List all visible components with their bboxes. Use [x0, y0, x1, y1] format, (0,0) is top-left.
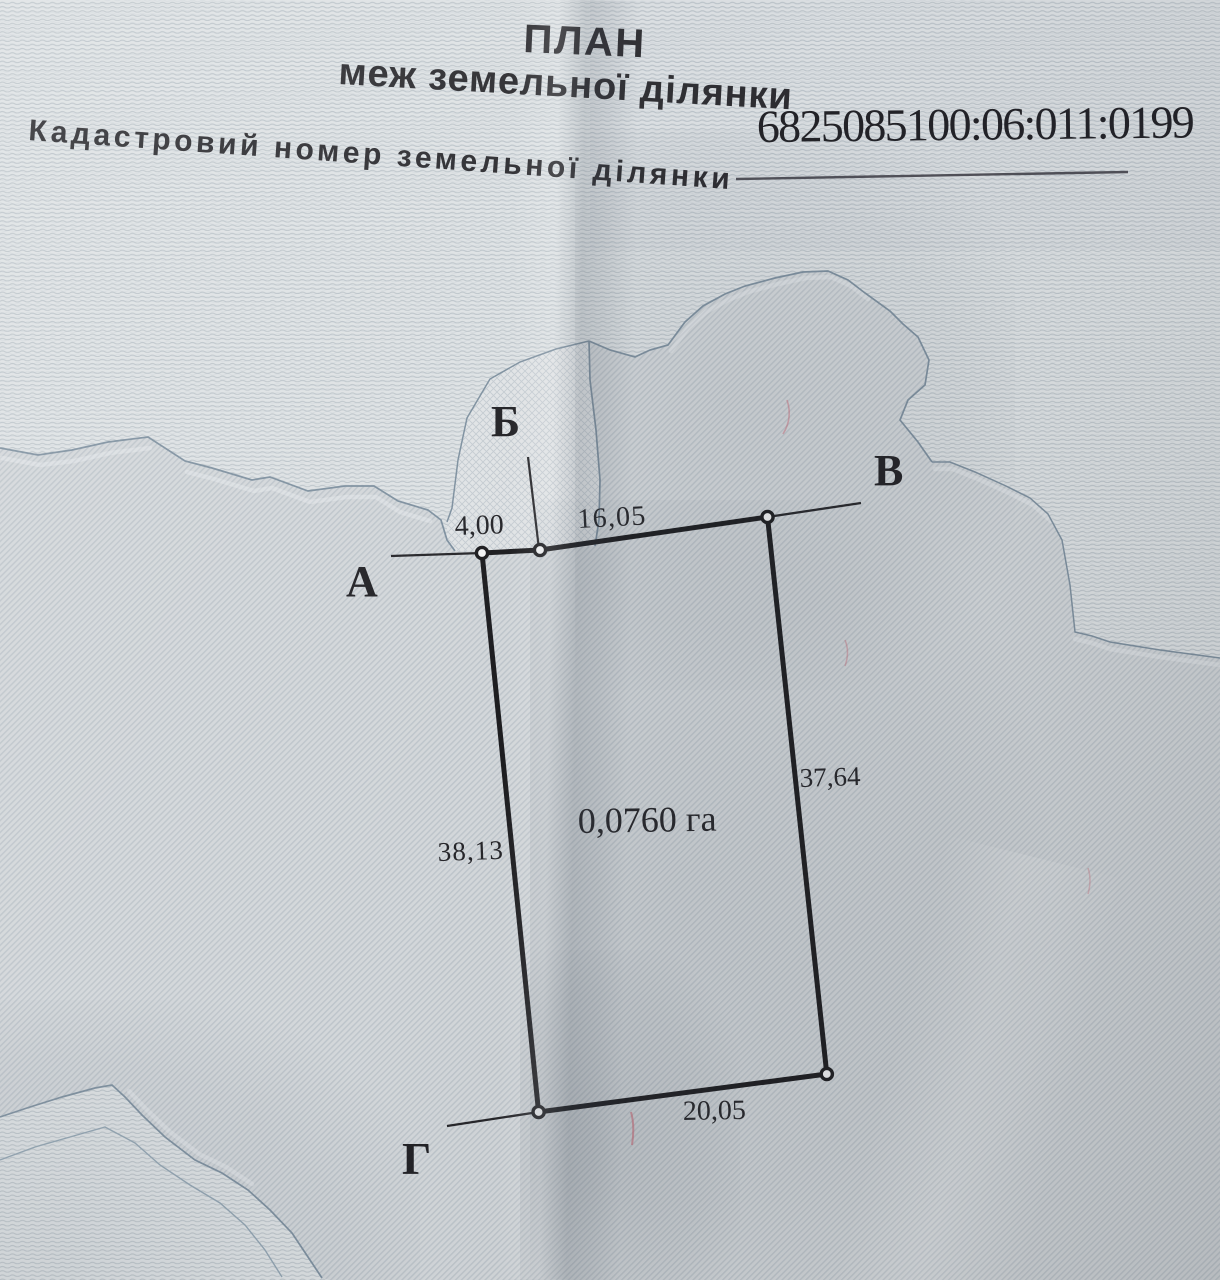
svg-text:20,05: 20,05 — [683, 1095, 747, 1127]
svg-text:Г: Г — [402, 1133, 431, 1184]
svg-text:Б: Б — [491, 397, 520, 446]
svg-text:В: В — [874, 446, 903, 495]
svg-text:6825085100:06:011:0199: 6825085100:06:011:0199 — [757, 96, 1194, 152]
svg-text:16,05: 16,05 — [577, 500, 648, 535]
svg-text:А: А — [346, 557, 378, 606]
svg-text:4,00: 4,00 — [454, 509, 504, 542]
svg-text:0,0760 га: 0,0760 га — [577, 799, 716, 841]
svg-text:38,13: 38,13 — [437, 835, 504, 867]
svg-text:37,64: 37,64 — [799, 761, 861, 793]
svg-text:ПЛАН: ПЛАН — [523, 17, 647, 66]
